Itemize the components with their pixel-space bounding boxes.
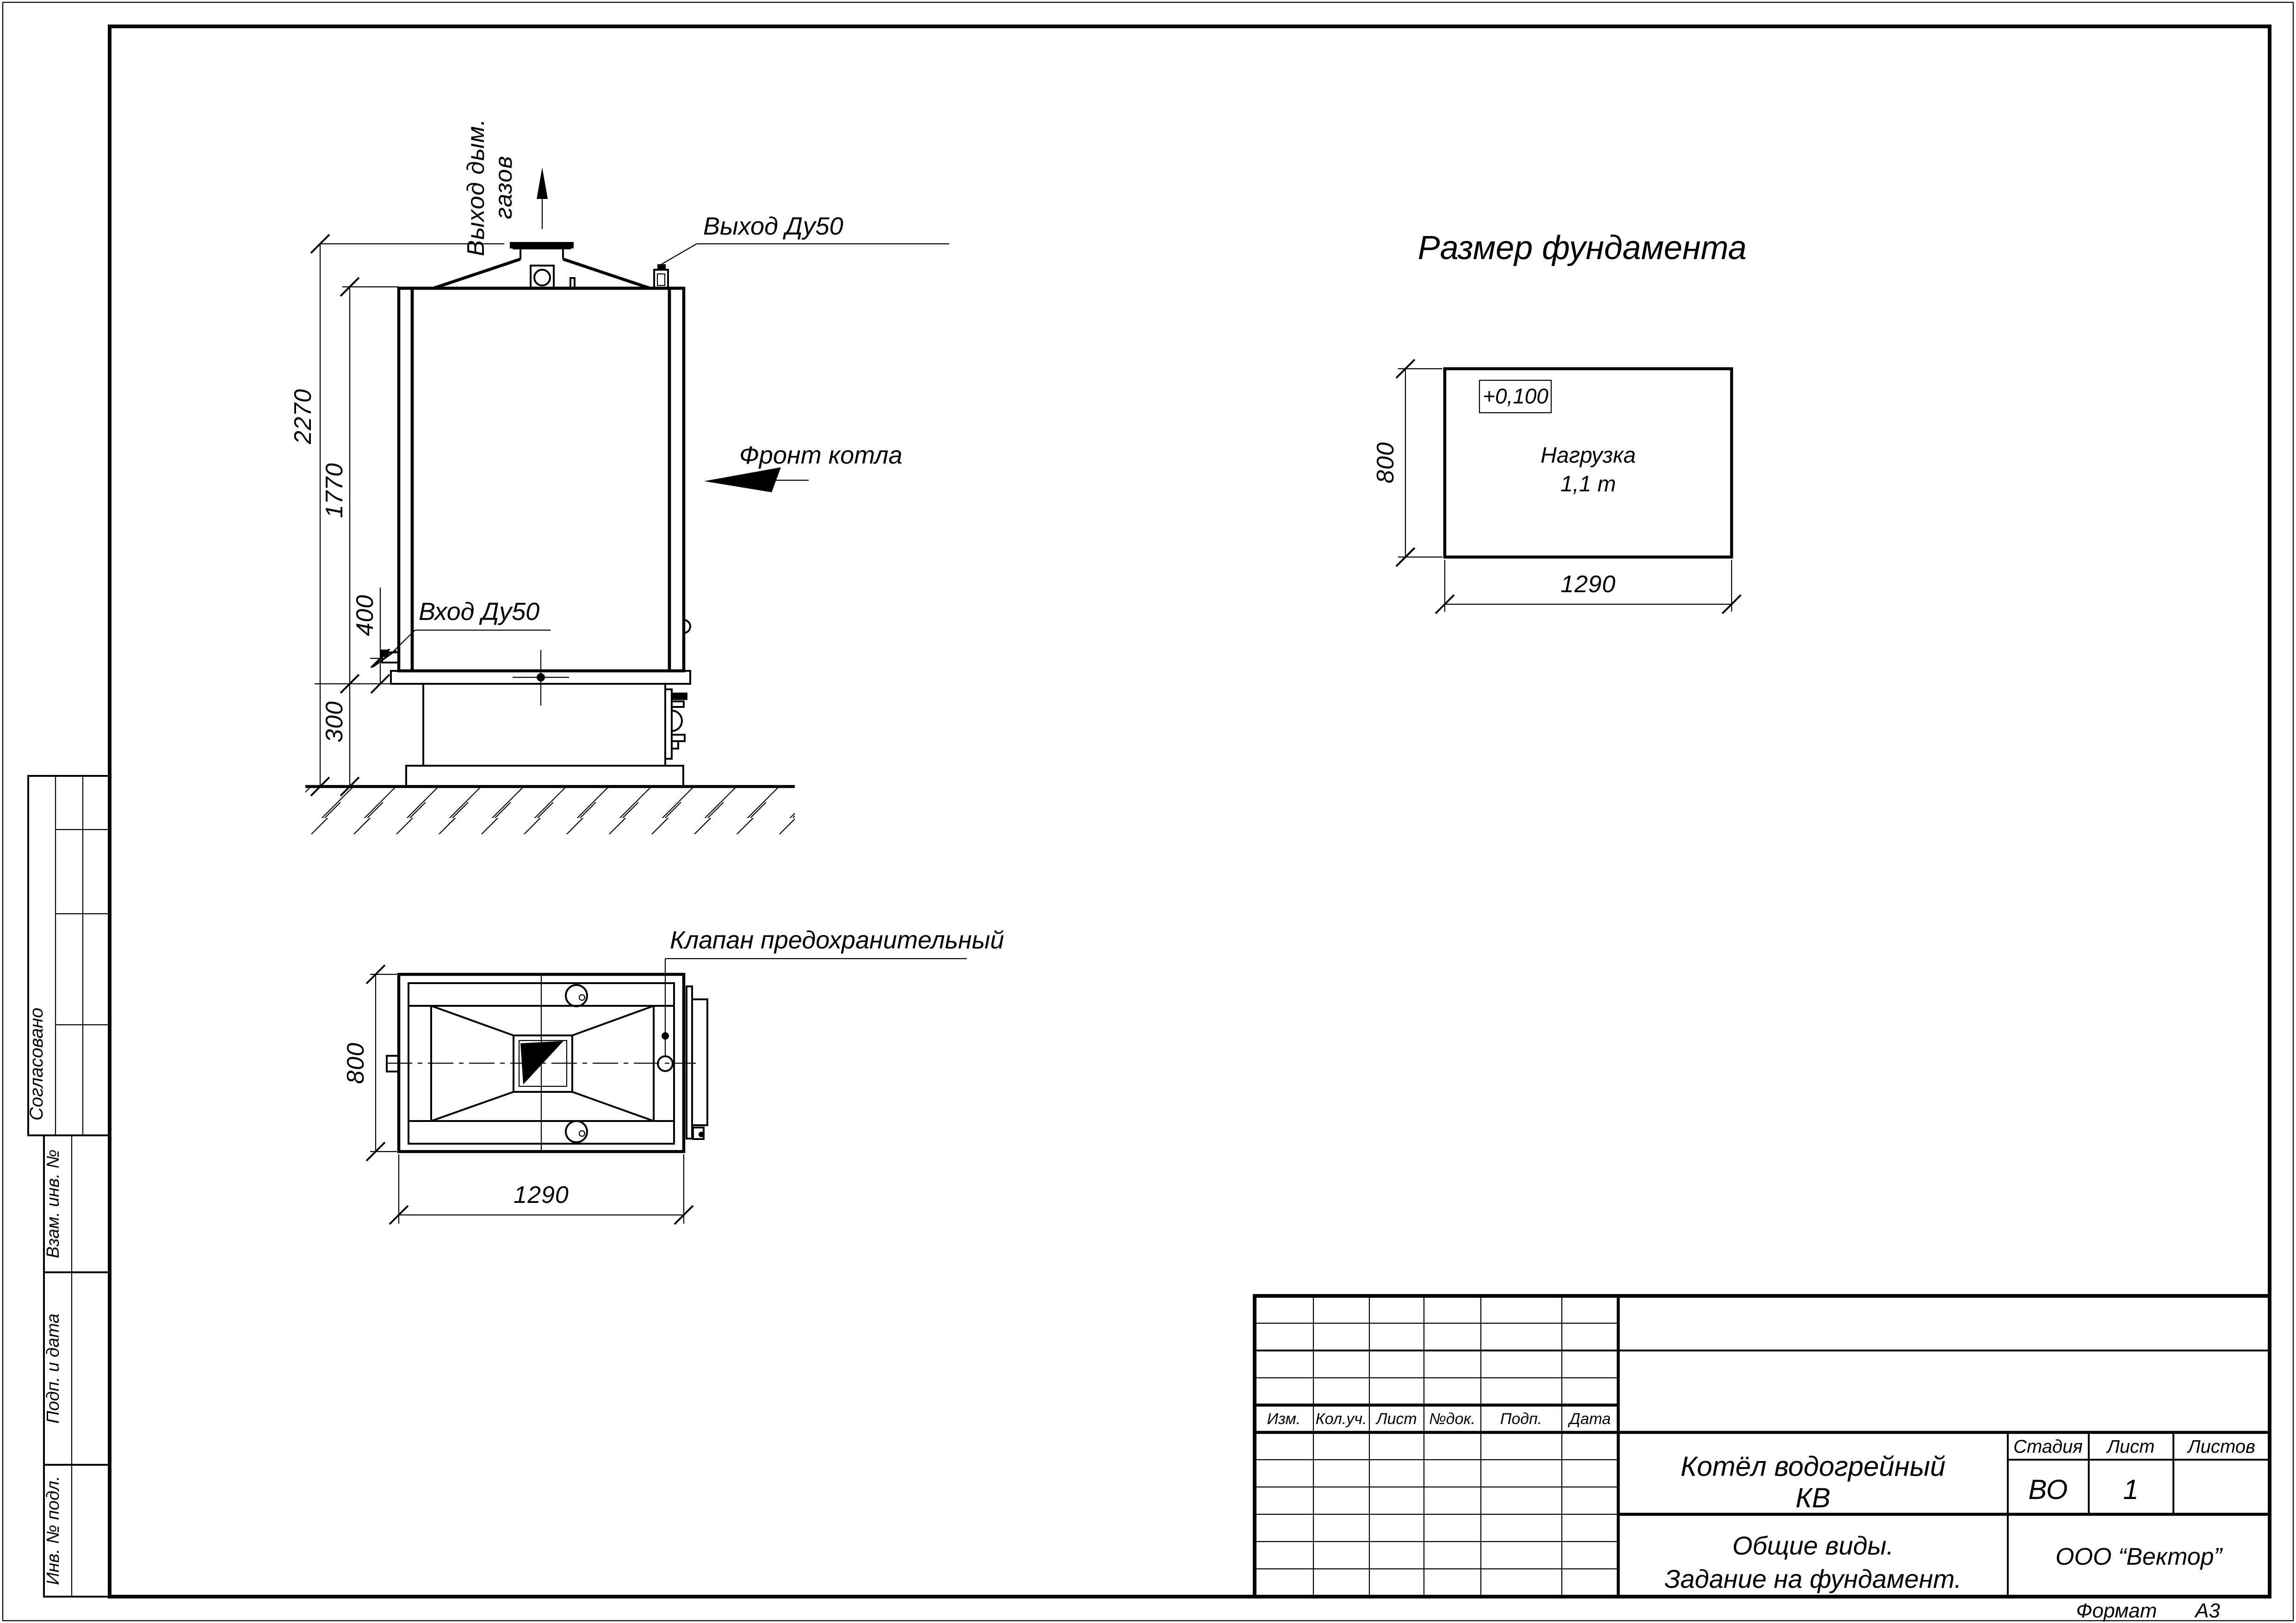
foundation-title: Размер фундамента xyxy=(1418,229,1747,266)
rev-header-list: Лист xyxy=(1375,1410,1417,1428)
rev-header-data: Дата xyxy=(1567,1410,1611,1428)
subtitle-line2: Задание на фундамент. xyxy=(1665,1564,1962,1593)
dim-inlet-height: 400 xyxy=(352,595,378,636)
outlet-label: Выход Ду50 xyxy=(703,212,843,240)
dim-total-height: 2270 xyxy=(290,389,316,445)
safety-valve-label: Клапан предохранительный xyxy=(670,926,1004,954)
rev-header-koluch: Кол.уч. xyxy=(1316,1410,1367,1428)
dim-base-height: 300 xyxy=(321,701,348,743)
stage-value: ВО xyxy=(2028,1474,2067,1505)
plan-dim-width: 1290 xyxy=(514,1182,569,1208)
format-value: А3 xyxy=(2194,1599,2220,1622)
agreed-label: Согласовано xyxy=(26,1008,47,1121)
flue-gas-label-line1: Выход дым. xyxy=(463,118,489,256)
foundation-dim-width: 1290 xyxy=(1560,571,1616,598)
flue-gas-label-line2: газов xyxy=(490,155,517,219)
replace-inv-label: Взам. инв. № xyxy=(43,1149,63,1258)
drawing-sheet: Выход дым. газов Выход Ду50 Вход Ду50 Фр… xyxy=(0,0,2296,1623)
doc-name-line1: Котёл водогрейный xyxy=(1681,1451,1946,1482)
plan-dim-depth: 800 xyxy=(342,1042,369,1084)
sheet-label: Лист xyxy=(2106,1437,2155,1457)
sheet-value: 1 xyxy=(2123,1474,2138,1505)
rev-header-podp: Подп. xyxy=(1500,1410,1542,1428)
inlet-label: Вход Ду50 xyxy=(419,598,539,626)
stage-label: Стадия xyxy=(2013,1437,2083,1457)
subtitle-line1: Общие виды. xyxy=(1733,1531,1894,1560)
sign-date-label: Подп. и дата xyxy=(43,1313,63,1424)
inv-orig-label: Инв. № подл. xyxy=(43,1476,63,1585)
ground-hatch xyxy=(305,788,795,834)
format-label: Формат xyxy=(2076,1599,2157,1622)
sheets-label: Листов xyxy=(2186,1437,2255,1457)
doc-name-line2: КВ xyxy=(1795,1482,1830,1513)
front-label: Фронт котла xyxy=(739,441,903,469)
valve-point xyxy=(662,1032,669,1040)
elevation-value: +0,100 xyxy=(1483,384,1548,408)
load-label: Нагрузка xyxy=(1541,443,1636,468)
rev-header-izm: Изм. xyxy=(1267,1410,1301,1428)
chimney-flange xyxy=(510,242,574,248)
rev-header-dok: №док. xyxy=(1429,1410,1475,1428)
dim-body-height: 1770 xyxy=(321,463,348,518)
load-value: 1,1 т xyxy=(1560,472,1616,496)
foundation-dim-depth: 800 xyxy=(1372,442,1399,483)
company-name: ООО “Вектор” xyxy=(2055,1543,2223,1570)
